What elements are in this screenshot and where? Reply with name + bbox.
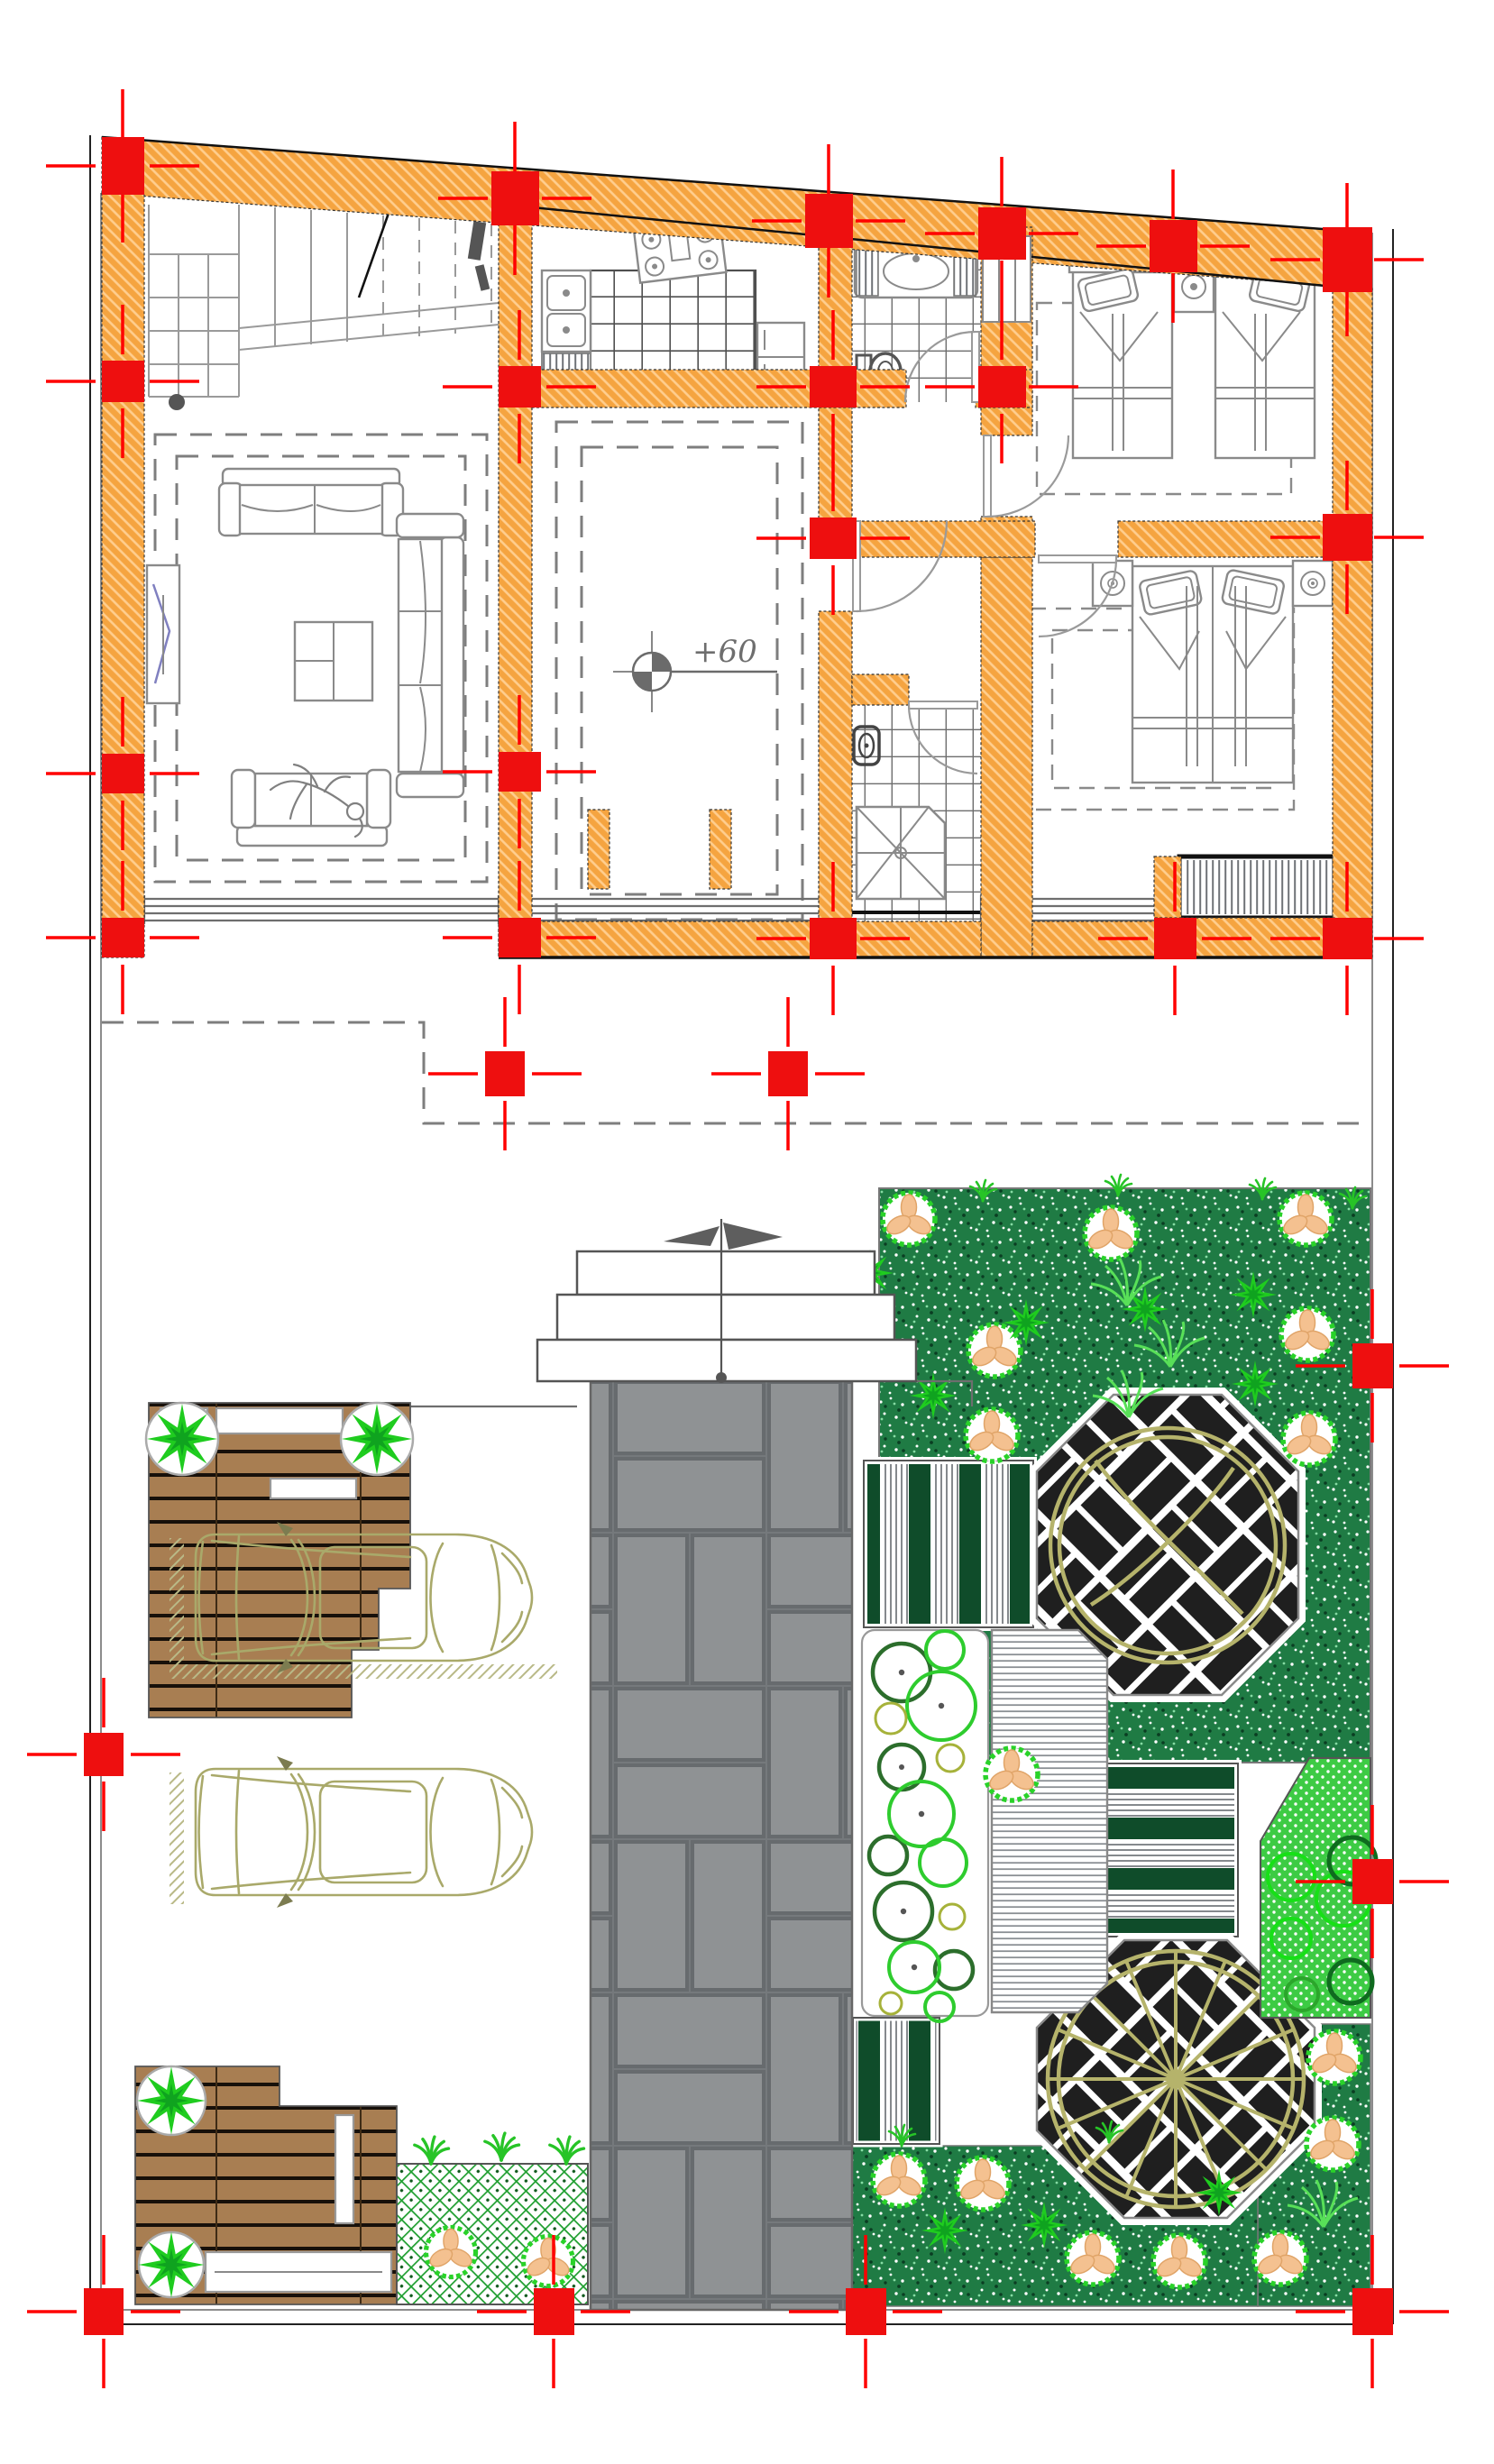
car-2	[196, 1756, 532, 1908]
living-room	[147, 435, 487, 882]
sofa-top	[219, 469, 403, 536]
paver-walkway	[591, 1378, 852, 2310]
bed-single-left	[1069, 260, 1176, 458]
nightstand-lamp	[1293, 561, 1333, 606]
sofa-bottom	[232, 770, 390, 846]
bedroom-1	[1037, 260, 1318, 494]
staircase	[149, 203, 499, 410]
door-bathroom	[972, 332, 979, 402]
wall-right	[1333, 289, 1372, 957]
wood-deck-lower	[135, 2066, 397, 2304]
hedge-band-1	[864, 1461, 1033, 1627]
kitchen-sink	[542, 270, 591, 352]
louvre-vent	[1179, 856, 1334, 918]
bedroom-2	[1031, 561, 1334, 918]
door-bedroom-1	[984, 435, 991, 517]
wall-object	[468, 221, 486, 261]
newel-post	[169, 394, 185, 410]
lattice-planter	[397, 2133, 588, 2304]
coffee-table	[295, 622, 372, 701]
bed-single-right	[1212, 260, 1318, 458]
door-wc	[909, 701, 977, 709]
pergola-deck	[992, 1630, 1107, 2012]
sofa-right	[397, 514, 463, 797]
tv-unit	[147, 565, 179, 703]
level-annotation: +60	[692, 634, 757, 670]
floor-plan-canvas: +60	[0, 0, 1494, 2460]
porch-pier	[710, 810, 731, 889]
shower	[857, 807, 945, 899]
bed-double	[1132, 566, 1293, 783]
door-bedroom-2	[1039, 555, 1116, 563]
level-marker: +60	[613, 631, 777, 712]
deck-bench	[335, 2115, 353, 2223]
deck-bench	[216, 1408, 343, 1434]
porch-pier	[588, 810, 610, 889]
entry-arrow	[664, 1226, 720, 1246]
hedge-band-3	[853, 2018, 939, 2144]
